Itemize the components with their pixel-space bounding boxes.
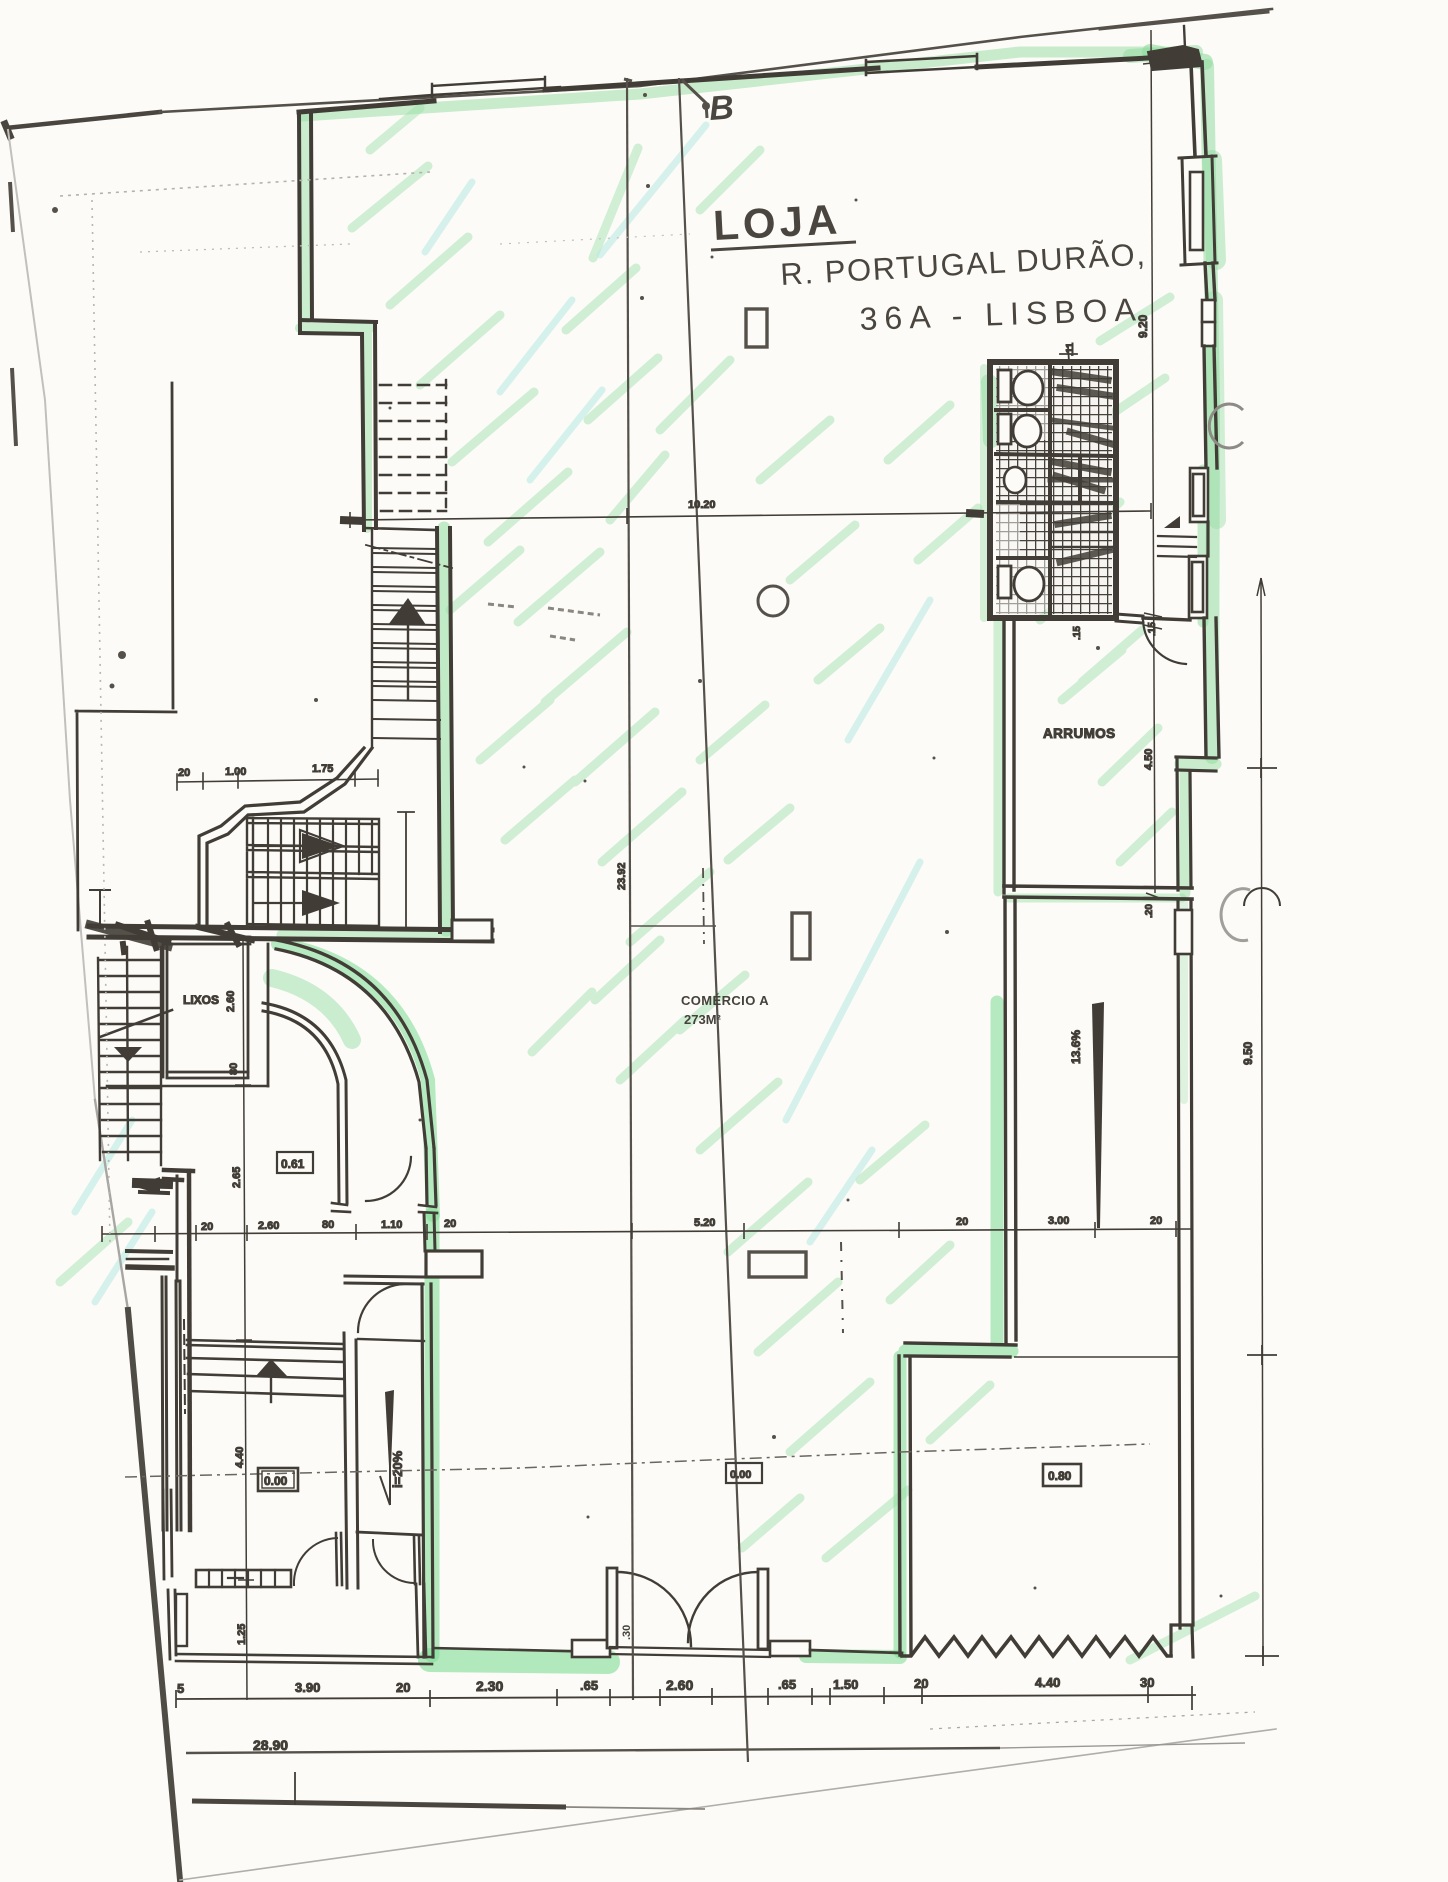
svg-text:20: 20 xyxy=(178,767,190,779)
svg-text:2.60: 2.60 xyxy=(258,1220,279,1232)
svg-text:20: 20 xyxy=(396,1680,410,1695)
svg-text:20: 20 xyxy=(914,1676,928,1691)
svg-text:2.60: 2.60 xyxy=(225,991,237,1012)
svg-text:0.61: 0.61 xyxy=(281,1157,305,1171)
svg-text:.15: .15 xyxy=(1072,626,1083,640)
svg-text:2.60: 2.60 xyxy=(666,1677,693,1693)
svg-text:20: 20 xyxy=(1150,1215,1162,1227)
svg-text:20: 20 xyxy=(201,1221,213,1233)
svg-text:4.40: 4.40 xyxy=(234,1447,246,1468)
svg-text:i=20%: i=20% xyxy=(390,1450,405,1488)
svg-text:5: 5 xyxy=(177,1681,184,1696)
svg-text:LIXOS: LIXOS xyxy=(183,993,219,1007)
svg-text:1.75: 1.75 xyxy=(312,763,333,775)
svg-text:0.00: 0.00 xyxy=(730,1469,751,1481)
svg-text:.11: .11 xyxy=(1065,342,1076,356)
svg-text:1.00: 1.00 xyxy=(225,766,246,778)
svg-text:4.50: 4.50 xyxy=(1143,749,1155,770)
svg-text:.20: .20 xyxy=(1144,904,1155,918)
svg-text:COMÉRCIO A: COMÉRCIO A xyxy=(681,993,769,1008)
svg-text:4.40: 4.40 xyxy=(1035,1675,1060,1690)
svg-text:.65: .65 xyxy=(580,1678,598,1693)
svg-text:LOJA: LOJA xyxy=(712,195,842,249)
svg-text:80: 80 xyxy=(322,1219,334,1231)
svg-text:ARRUMOS: ARRUMOS xyxy=(1043,726,1116,741)
svg-text:0.80: 0.80 xyxy=(1048,1469,1072,1483)
svg-text:2.30: 2.30 xyxy=(476,1678,503,1694)
svg-text:80: 80 xyxy=(228,1063,240,1075)
svg-text:1.50: 1.50 xyxy=(833,1677,858,1692)
svg-text:30: 30 xyxy=(1140,1675,1154,1690)
svg-text:B: B xyxy=(708,88,735,128)
svg-text:3.90: 3.90 xyxy=(295,1680,320,1695)
svg-text:23.92: 23.92 xyxy=(616,862,628,890)
svg-text:9.50: 9.50 xyxy=(1241,1041,1255,1065)
svg-text:5.20: 5.20 xyxy=(694,1217,715,1229)
svg-text:1.10: 1.10 xyxy=(381,1219,402,1231)
svg-text:20: 20 xyxy=(444,1218,456,1230)
svg-text:.30: .30 xyxy=(621,1625,633,1640)
svg-text:20: 20 xyxy=(956,1216,968,1228)
svg-text:273M²: 273M² xyxy=(684,1012,722,1027)
svg-text:3.00: 3.00 xyxy=(1048,1215,1069,1227)
svg-text:2.65: 2.65 xyxy=(231,1167,243,1188)
svg-text:.15: .15 xyxy=(1147,622,1158,636)
svg-text:0.00: 0.00 xyxy=(264,1474,288,1488)
svg-text:28.90: 28.90 xyxy=(253,1737,288,1753)
svg-text:1.25: 1.25 xyxy=(236,1624,248,1645)
svg-text:.65: .65 xyxy=(778,1677,796,1692)
svg-text:10.20: 10.20 xyxy=(688,499,716,511)
svg-text:13.6%: 13.6% xyxy=(1069,1030,1083,1064)
